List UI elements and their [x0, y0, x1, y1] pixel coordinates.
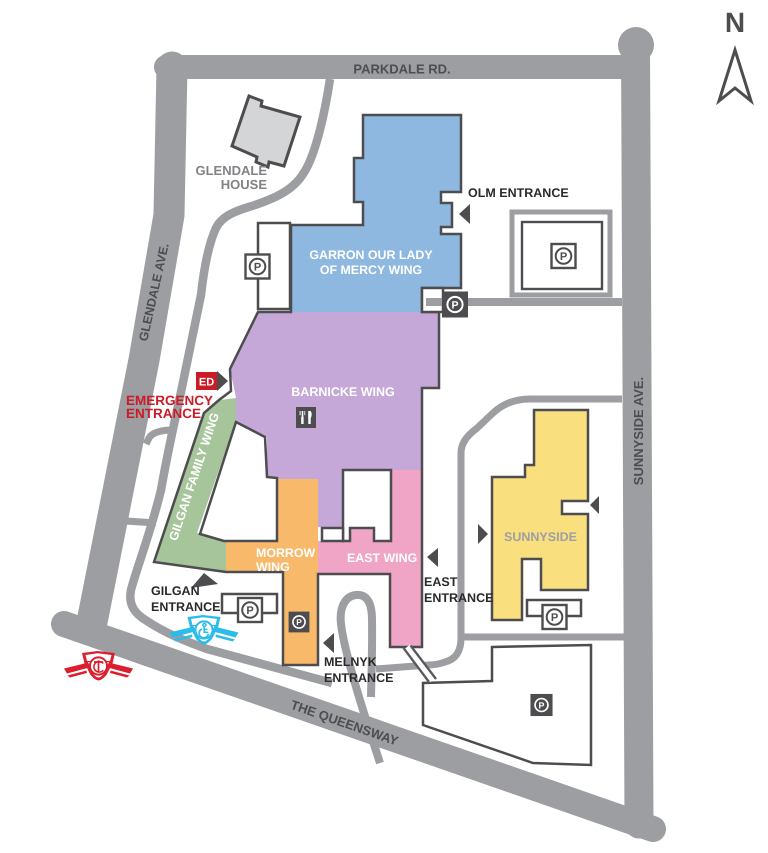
svg-text:N: N	[725, 7, 745, 38]
svg-text:OLM ENTRANCE: OLM ENTRANCE	[468, 186, 569, 200]
svg-text:GLENDALE: GLENDALE	[196, 163, 268, 178]
svg-text:MELNYK: MELNYK	[324, 655, 377, 669]
svg-text:ENTRANCE: ENTRANCE	[424, 591, 493, 605]
svg-text:SUNNYSIDE: SUNNYSIDE	[504, 530, 577, 544]
svg-text:GILGAN: GILGAN	[151, 584, 200, 598]
svg-text:WING: WING	[256, 560, 290, 574]
svg-text:BARNICKE WING: BARNICKE WING	[291, 385, 394, 399]
svg-text:ENTRANCE: ENTRANCE	[151, 600, 220, 614]
svg-text:PARKDALE RD.: PARKDALE RD.	[353, 62, 450, 77]
svg-text:ED: ED	[199, 377, 214, 389]
svg-text:HOUSE: HOUSE	[221, 177, 268, 192]
svg-text:ENTRANCE: ENTRANCE	[126, 406, 201, 421]
svg-text:SUNNYSIDE AVE.: SUNNYSIDE AVE.	[631, 377, 646, 485]
svg-text:EAST WING: EAST WING	[347, 551, 417, 565]
svg-text:EAST: EAST	[424, 575, 458, 589]
svg-text:ENTRANCE: ENTRANCE	[324, 671, 393, 685]
svg-text:OF MERCY WING: OF MERCY WING	[320, 263, 422, 277]
svg-text:GARRON OUR LADY: GARRON OUR LADY	[309, 248, 433, 262]
svg-text:MORROW: MORROW	[256, 546, 315, 560]
